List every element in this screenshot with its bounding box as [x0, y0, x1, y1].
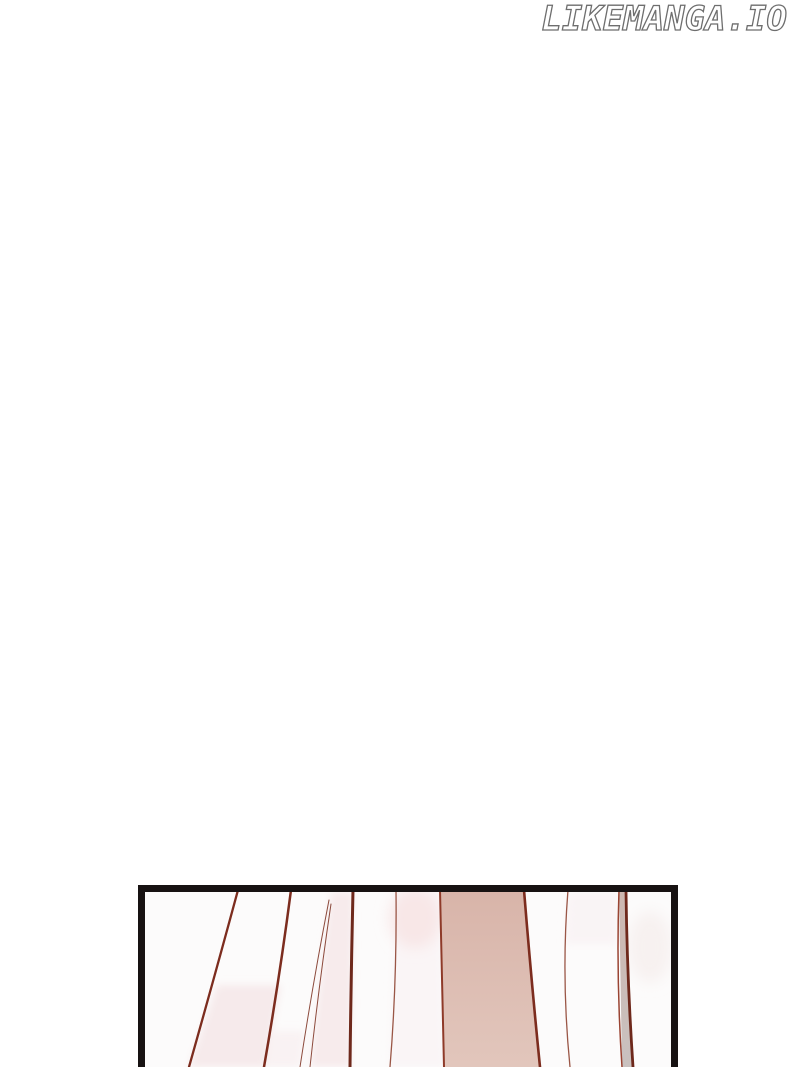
panel-artwork-drapery — [145, 892, 671, 1067]
wash-right-top — [565, 892, 619, 944]
corner-tint — [628, 911, 671, 983]
wash-full-height — [310, 892, 353, 1067]
comic-panel — [138, 885, 678, 1067]
fabric-band — [440, 892, 540, 1067]
site-watermark: LIKEMANGA.IO — [541, 1, 787, 38]
manga-reader-page: LIKEMANGA.IO — [0, 0, 800, 1067]
